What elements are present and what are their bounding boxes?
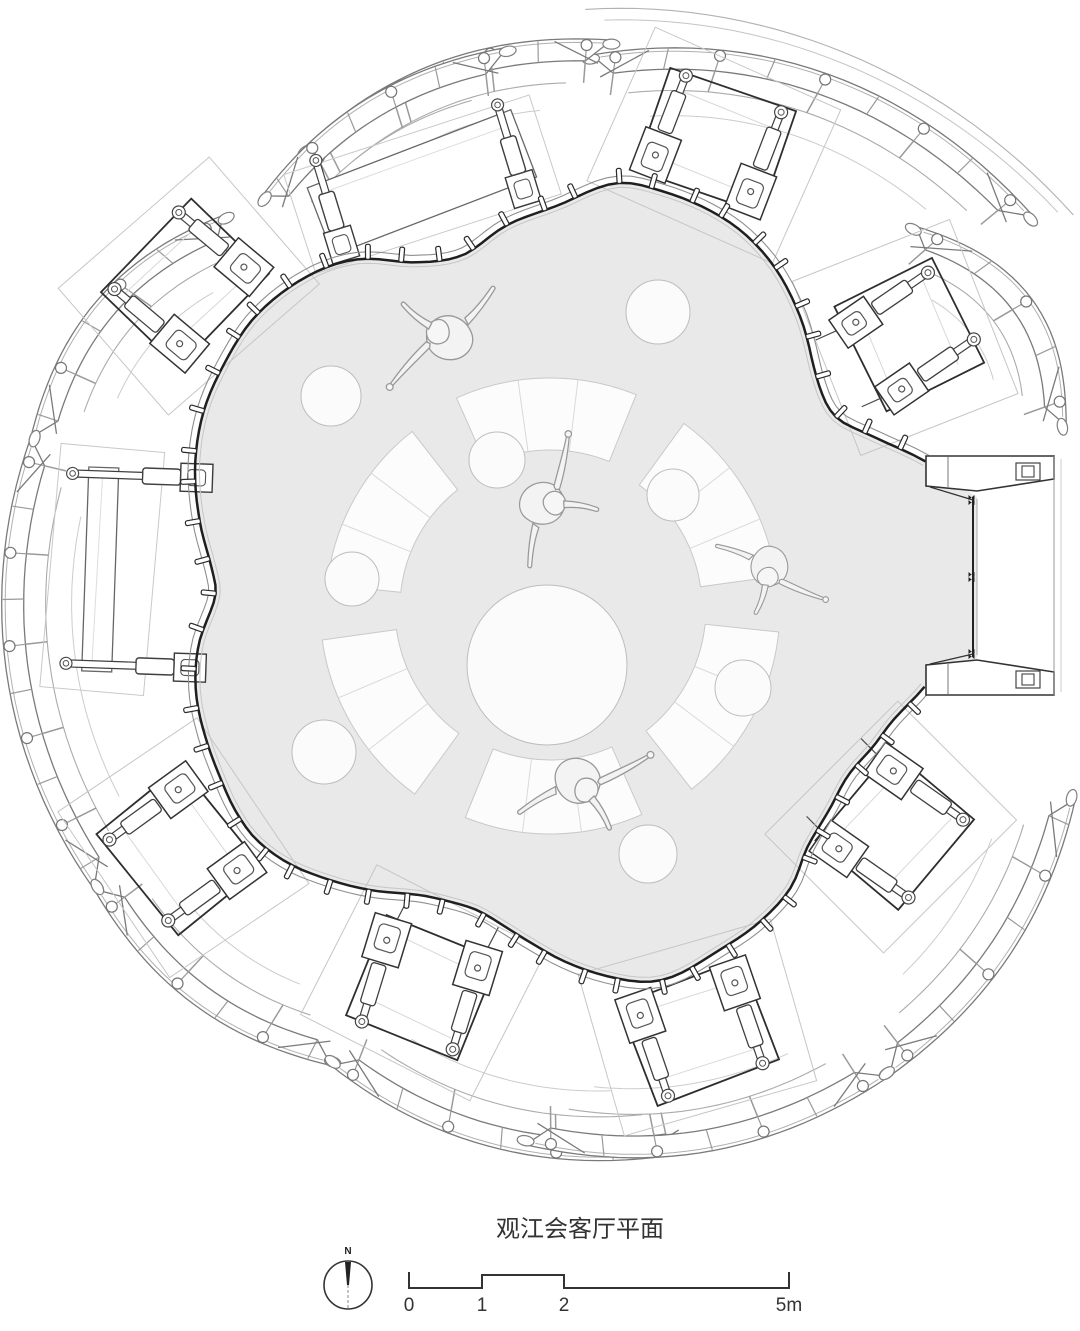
svg-text:N: N bbox=[344, 1246, 351, 1257]
svg-text:1: 1 bbox=[477, 1295, 488, 1316]
svg-text:0: 0 bbox=[404, 1295, 415, 1316]
svg-text:5m: 5m bbox=[776, 1295, 802, 1316]
svg-text:2: 2 bbox=[559, 1295, 570, 1316]
